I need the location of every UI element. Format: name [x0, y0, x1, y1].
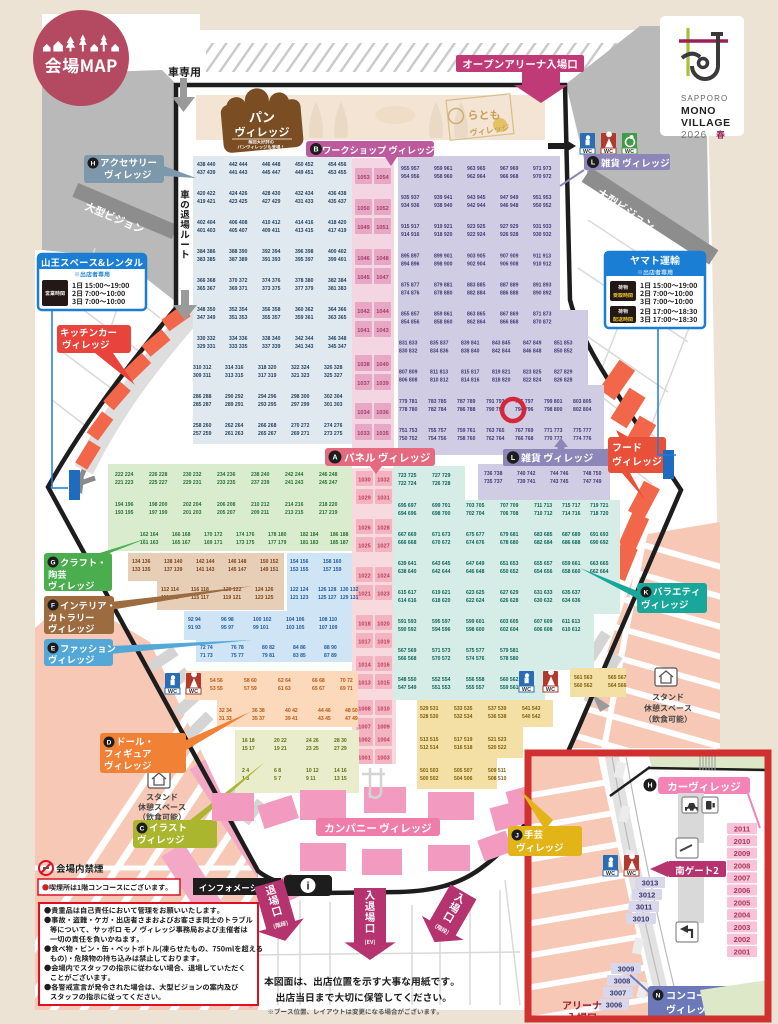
svg-text:786 788: 786 788: [457, 407, 476, 413]
svg-text:174 176: 174 176: [236, 532, 255, 538]
svg-text:571 573: 571 573: [432, 648, 451, 654]
svg-text:WC: WC: [189, 689, 198, 695]
svg-text:934 936: 934 936: [401, 203, 420, 209]
svg-text:2001: 2001: [734, 948, 751, 957]
svg-text:H: H: [647, 783, 652, 790]
svg-text:699 701: 699 701: [432, 503, 451, 509]
svg-text:882 884: 882 884: [467, 290, 486, 296]
svg-text:508 510: 508 510: [488, 776, 507, 782]
svg-text:289 291: 289 291: [225, 402, 244, 408]
svg-text:1052: 1052: [376, 206, 388, 212]
svg-text:687 689: 687 689: [562, 532, 581, 538]
svg-text:1029: 1029: [358, 496, 370, 502]
svg-text:96 98: 96 98: [221, 617, 234, 623]
svg-text:971 973: 971 973: [533, 166, 552, 172]
svg-text:803 805: 803 805: [573, 399, 592, 405]
svg-text:194 196: 194 196: [115, 502, 134, 508]
svg-text:321 323: 321 323: [291, 373, 310, 379]
svg-text:1049: 1049: [357, 225, 369, 231]
svg-text:298 300: 298 300: [291, 394, 310, 400]
svg-text:871 873: 871 873: [533, 312, 552, 318]
svg-text:675 677: 675 677: [466, 532, 485, 538]
svg-text:1047: 1047: [376, 275, 388, 281]
svg-text:1026: 1026: [358, 526, 370, 532]
svg-text:555 557: 555 557: [466, 685, 485, 691]
svg-text:513 515: 513 515: [420, 737, 439, 743]
svg-text:561 563: 561 563: [574, 675, 593, 681]
svg-text:1048: 1048: [376, 256, 388, 262]
svg-text:126 128: 126 128: [318, 587, 337, 593]
svg-text:879 881: 879 881: [434, 282, 453, 288]
svg-text:942 944: 942 944: [467, 203, 486, 209]
svg-text:57 59: 57 59: [244, 686, 257, 692]
svg-text:225 227: 225 227: [149, 480, 168, 486]
svg-text:512 514: 512 514: [420, 745, 439, 751]
svg-text:H: H: [91, 161, 96, 168]
svg-text:2006: 2006: [734, 886, 751, 895]
svg-text:230 232: 230 232: [183, 472, 202, 478]
svg-text:831 833: 831 833: [399, 341, 418, 347]
svg-text:899 901: 899 901: [434, 253, 453, 259]
svg-text:678 680: 678 680: [500, 540, 519, 546]
svg-text:14 16: 14 16: [334, 768, 347, 774]
svg-text:1004: 1004: [377, 738, 390, 744]
svg-text:955 957: 955 957: [401, 166, 420, 172]
svg-text:847 849: 847 849: [523, 341, 542, 347]
svg-text:810 812: 810 812: [430, 378, 449, 384]
svg-text:618 620: 618 620: [432, 598, 451, 604]
svg-text:342 344: 342 344: [295, 336, 314, 342]
svg-text:309 311: 309 311: [193, 373, 211, 379]
svg-text:205 207: 205 207: [217, 510, 236, 516]
svg-text:36 38: 36 38: [252, 708, 265, 714]
svg-text:706 708: 706 708: [500, 511, 519, 517]
svg-text:516 518: 516 518: [454, 745, 473, 751]
svg-text:774 776: 774 776: [573, 436, 592, 442]
svg-text:574 576: 574 576: [466, 656, 485, 662]
svg-text:285 287: 285 287: [193, 402, 212, 408]
svg-text:3007: 3007: [610, 989, 627, 998]
svg-text:926 928: 926 928: [500, 232, 519, 238]
svg-text:438 440: 438 440: [197, 162, 216, 168]
svg-text:338 340: 338 340: [262, 336, 281, 342]
svg-text:736 738: 736 738: [484, 471, 503, 477]
svg-text:1002: 1002: [358, 738, 370, 744]
svg-text:2009: 2009: [734, 849, 751, 858]
svg-text:1036: 1036: [376, 410, 388, 416]
svg-text:206 208: 206 208: [217, 502, 236, 508]
svg-text:898 900: 898 900: [434, 261, 453, 267]
svg-text:359 361: 359 361: [295, 315, 314, 321]
svg-text:428 430: 428 430: [262, 191, 281, 197]
svg-text:1034: 1034: [357, 410, 370, 416]
svg-text:WC: WC: [546, 687, 555, 693]
svg-text:1028: 1028: [377, 526, 389, 532]
svg-text:75 77: 75 77: [231, 653, 244, 659]
svg-text:N: N: [656, 993, 661, 1000]
svg-text:1018: 1018: [358, 622, 370, 628]
svg-text:2002: 2002: [734, 935, 751, 944]
svg-text:104 106: 104 106: [286, 617, 305, 623]
svg-text:690 692: 690 692: [590, 540, 609, 546]
svg-text:445 447: 445 447: [262, 170, 281, 176]
svg-text:951 953: 951 953: [533, 195, 552, 201]
svg-text:266 268: 266 268: [258, 423, 277, 429]
svg-text:15 17: 15 17: [242, 746, 255, 752]
svg-text:619 621: 619 621: [432, 590, 451, 596]
svg-text:814 816: 814 816: [461, 378, 480, 384]
svg-text:802 804: 802 804: [573, 407, 592, 413]
svg-text:198 200: 198 200: [149, 502, 168, 508]
svg-text:262 264: 262 264: [225, 423, 244, 429]
svg-text:1040: 1040: [376, 362, 388, 368]
svg-text:142 144: 142 144: [196, 559, 215, 565]
svg-text:137 139: 137 139: [164, 567, 183, 573]
svg-text:399 401: 399 401: [328, 257, 347, 263]
svg-text:286 288: 286 288: [193, 394, 212, 400]
svg-text:130 132: 130 132: [340, 587, 359, 593]
svg-text:431 433: 431 433: [295, 199, 314, 205]
svg-text:D: D: [107, 740, 112, 747]
svg-text:293 295: 293 295: [258, 402, 277, 408]
svg-text:355 357: 355 357: [262, 315, 281, 321]
svg-text:683 685: 683 685: [534, 532, 553, 538]
svg-text:222 224: 222 224: [115, 472, 134, 478]
svg-text:146 148: 146 148: [228, 559, 247, 565]
svg-text:890 892: 890 892: [533, 290, 552, 296]
svg-text:261 263: 261 263: [225, 431, 244, 437]
svg-text:923 925: 923 925: [467, 224, 486, 230]
svg-text:413 415: 413 415: [295, 228, 314, 234]
svg-text:610 612: 610 612: [562, 627, 581, 633]
svg-text:382 384: 382 384: [328, 278, 347, 284]
svg-text:591 593: 591 593: [398, 619, 417, 625]
svg-text:121 123: 121 123: [290, 595, 309, 601]
svg-text:694 696: 694 696: [398, 511, 417, 517]
svg-text:670 672: 670 672: [432, 540, 451, 546]
svg-text:1037: 1037: [357, 381, 369, 387]
svg-text:614 616: 614 616: [398, 598, 417, 604]
svg-text:565 567: 565 567: [608, 675, 627, 681]
svg-text:723 725: 723 725: [398, 473, 417, 479]
svg-text:141 143: 141 143: [196, 567, 215, 573]
svg-text:145 147: 145 147: [228, 567, 247, 573]
svg-text:778 780: 778 780: [399, 407, 418, 413]
svg-text:590 592: 590 592: [398, 627, 417, 633]
svg-text:424 426: 424 426: [229, 191, 248, 197]
svg-text:310 312: 310 312: [193, 365, 212, 371]
svg-text:927 929: 927 929: [500, 224, 519, 230]
svg-text:755 757: 755 757: [428, 428, 447, 434]
svg-text:635 637: 635 637: [562, 590, 581, 596]
svg-text:651 653: 651 653: [500, 561, 519, 567]
svg-text:435 437: 435 437: [328, 199, 347, 205]
svg-text:417 419: 417 419: [328, 228, 347, 234]
svg-text:602 604: 602 604: [500, 627, 519, 633]
svg-text:598 600: 598 600: [466, 627, 485, 633]
svg-text:388 390: 388 390: [229, 249, 248, 255]
svg-text:123 125: 123 125: [255, 595, 274, 601]
svg-text:378 380: 378 380: [295, 278, 314, 284]
svg-text:16 18: 16 18: [242, 738, 255, 744]
svg-text:2026: 2026: [681, 130, 707, 141]
svg-text:714 716: 714 716: [562, 511, 581, 517]
svg-text:WC: WC: [522, 687, 531, 693]
svg-text:47 49: 47 49: [345, 716, 358, 722]
svg-text:3011: 3011: [636, 903, 652, 912]
svg-text:381 383: 381 383: [328, 286, 347, 292]
svg-text:405 407: 405 407: [229, 228, 248, 234]
svg-text:1046: 1046: [357, 256, 369, 262]
svg-text:133 135: 133 135: [132, 567, 151, 573]
svg-text:453 455: 453 455: [328, 170, 347, 176]
svg-text:763 765: 763 765: [486, 428, 505, 434]
svg-text:3012: 3012: [639, 891, 656, 900]
svg-text:1019: 1019: [377, 640, 389, 646]
svg-text:667 669: 667 669: [398, 532, 417, 538]
svg-text:213 215: 213 215: [285, 510, 304, 516]
svg-text:501 503: 501 503: [420, 768, 439, 774]
svg-text:1008: 1008: [358, 707, 370, 713]
svg-text:659 661: 659 661: [562, 561, 581, 567]
svg-text:540 542: 540 542: [522, 714, 541, 720]
svg-text:290 292: 290 292: [225, 394, 244, 400]
svg-text:3006: 3006: [606, 1001, 623, 1010]
svg-text:775 777: 775 777: [573, 428, 592, 434]
svg-text:783 785: 783 785: [428, 399, 447, 405]
svg-text:799 801: 799 801: [544, 399, 563, 405]
svg-text:646 648: 646 648: [466, 569, 485, 575]
svg-text:719 721: 719 721: [590, 503, 609, 509]
svg-text:257 259: 257 259: [193, 431, 212, 437]
svg-text:400 402: 400 402: [328, 249, 347, 255]
svg-text:119 121: 119 121: [223, 595, 241, 601]
svg-text:548 550: 548 550: [398, 677, 417, 683]
svg-text:1045: 1045: [357, 275, 369, 281]
svg-text:748 750: 748 750: [583, 471, 602, 477]
svg-text:WC: WC: [606, 871, 615, 877]
svg-text:162 164: 162 164: [140, 532, 159, 538]
svg-text:711 713: 711 713: [534, 503, 552, 509]
svg-text:242 244: 242 244: [285, 472, 304, 478]
svg-text:383 385: 383 385: [197, 257, 216, 263]
svg-text:1007: 1007: [358, 725, 370, 731]
svg-text:i: i: [306, 881, 309, 893]
svg-text:170 172: 170 172: [204, 532, 223, 538]
svg-text:363 365: 363 365: [328, 315, 347, 321]
svg-text:2004: 2004: [734, 911, 752, 920]
svg-text:F: F: [51, 603, 55, 610]
svg-text:364 366: 364 366: [328, 307, 347, 313]
svg-text:919 921: 919 921: [434, 224, 453, 230]
svg-text:13 15: 13 15: [334, 776, 347, 782]
svg-text:887 889: 887 889: [500, 282, 519, 288]
svg-text:627 629: 627 629: [500, 590, 519, 596]
svg-text:603 605: 603 605: [500, 619, 519, 625]
svg-text:2005: 2005: [734, 898, 751, 907]
svg-text:186 188: 186 188: [330, 532, 349, 538]
svg-text:922 924: 922 924: [467, 232, 486, 238]
svg-text:735 737: 735 737: [484, 479, 503, 485]
svg-text:541 543: 541 543: [522, 706, 541, 712]
svg-text:442 444: 442 444: [229, 162, 248, 168]
svg-text:759 761: 759 761: [457, 428, 476, 434]
svg-text:910 912: 910 912: [533, 261, 552, 267]
svg-text:959 961: 959 961: [434, 166, 453, 172]
svg-text:J: J: [515, 833, 519, 840]
svg-text:39 41: 39 41: [285, 716, 298, 722]
svg-text:185 187: 185 187: [330, 540, 349, 546]
svg-text:560 562: 560 562: [500, 677, 519, 683]
svg-text:418 420: 418 420: [328, 220, 347, 226]
svg-text:48 50: 48 50: [345, 708, 358, 714]
svg-text:177 179: 177 179: [268, 540, 287, 546]
svg-text:902 904: 902 904: [467, 261, 486, 267]
svg-text:182 184: 182 184: [300, 532, 319, 538]
svg-text:87 89: 87 89: [324, 653, 337, 659]
svg-text:265 267: 265 267: [258, 431, 277, 437]
svg-text:767 769: 767 769: [515, 428, 534, 434]
svg-text:150 152: 150 152: [260, 559, 279, 565]
svg-text:529 531: 529 531: [420, 706, 439, 712]
svg-text:165 167: 165 167: [172, 540, 191, 546]
svg-text:564 566: 564 566: [608, 683, 627, 689]
svg-text:229 231: 229 231: [183, 480, 202, 486]
svg-text:313 315: 313 315: [225, 373, 244, 379]
svg-text:122 124: 122 124: [290, 587, 309, 593]
svg-text:124 126: 124 126: [255, 587, 274, 593]
svg-text:935 937: 935 937: [401, 195, 420, 201]
svg-text:1015: 1015: [377, 681, 389, 687]
svg-text:365 367: 365 367: [197, 286, 216, 292]
svg-text:134 136: 134 136: [132, 559, 151, 565]
svg-text:2 4: 2 4: [242, 768, 249, 774]
svg-text:866 868: 866 868: [500, 320, 519, 326]
svg-text:818 820: 818 820: [492, 378, 511, 384]
svg-text:374 376: 374 376: [262, 278, 281, 284]
svg-text:181 183: 181 183: [300, 540, 319, 546]
svg-text:WC: WC: [168, 689, 177, 695]
svg-text:373 375: 373 375: [262, 286, 281, 292]
svg-text:6 8: 6 8: [274, 768, 281, 774]
svg-text:95 97: 95 97: [221, 625, 234, 631]
svg-text:520 522: 520 522: [488, 745, 507, 751]
svg-text:556 558: 556 558: [466, 677, 485, 683]
svg-text:297 299: 297 299: [291, 402, 310, 408]
svg-text:345 347: 345 347: [328, 344, 347, 350]
svg-text:24 26: 24 26: [306, 738, 319, 744]
svg-text:369 371: 369 371: [229, 286, 248, 292]
svg-text:58 60: 58 60: [244, 678, 257, 684]
svg-text:419 421: 419 421: [197, 199, 216, 205]
svg-text:834 836: 834 836: [430, 349, 449, 355]
svg-text:578 580: 578 580: [500, 656, 519, 662]
svg-text:1053: 1053: [357, 175, 369, 181]
svg-text:970 972: 970 972: [533, 174, 552, 180]
svg-text:594 596: 594 596: [432, 627, 451, 633]
svg-text:202 204: 202 204: [183, 502, 202, 508]
svg-text:370 372: 370 372: [229, 278, 248, 284]
svg-text:154 156: 154 156: [290, 559, 309, 565]
svg-text:782 784: 782 784: [428, 407, 447, 413]
svg-text:643 645: 643 645: [432, 561, 451, 567]
svg-text:2008: 2008: [734, 861, 751, 870]
svg-text:843 845: 843 845: [492, 341, 511, 347]
svg-text:9 11: 9 11: [306, 776, 316, 782]
svg-text:274 276: 274 276: [324, 423, 343, 429]
svg-text:504 506: 504 506: [454, 776, 473, 782]
svg-text:886 888: 886 888: [500, 290, 519, 296]
svg-text:125 127: 125 127: [318, 595, 337, 601]
svg-text:623 625: 623 625: [466, 590, 485, 596]
svg-text:69 71: 69 71: [340, 686, 353, 692]
svg-text:317 319: 317 319: [258, 373, 277, 379]
svg-text:1044: 1044: [376, 309, 389, 315]
svg-text:747 749: 747 749: [583, 479, 602, 485]
svg-text:863 865: 863 865: [467, 312, 486, 318]
svg-text:MONO: MONO: [681, 105, 716, 117]
svg-text:35 37: 35 37: [252, 716, 265, 722]
svg-text:647 649: 647 649: [466, 561, 485, 567]
svg-text:826 828: 826 828: [554, 378, 573, 384]
svg-text:314 316: 314 316: [225, 365, 244, 371]
svg-text:79 81: 79 81: [262, 653, 275, 659]
svg-text:450 452: 450 452: [295, 162, 314, 168]
svg-text:891 893: 891 893: [533, 282, 552, 288]
svg-text:414 416: 414 416: [295, 220, 314, 226]
svg-text:650 652: 650 652: [500, 569, 519, 575]
svg-text:2010: 2010: [734, 837, 751, 846]
svg-text:878 880: 878 880: [434, 290, 453, 296]
svg-text:1042: 1042: [357, 309, 369, 315]
svg-text:559 561: 559 561: [500, 685, 519, 691]
svg-text:947 949: 947 949: [500, 195, 519, 201]
svg-text:76 78: 76 78: [231, 645, 244, 651]
svg-text:149 151: 149 151: [260, 567, 279, 573]
svg-text:686 688: 686 688: [562, 540, 581, 546]
svg-text:153 155: 153 155: [290, 567, 309, 573]
svg-text:679 681: 679 681: [500, 532, 519, 538]
svg-text:169 171: 169 171: [204, 540, 223, 546]
svg-text:258 260: 258 260: [193, 423, 212, 429]
svg-text:233 235: 233 235: [217, 480, 236, 486]
svg-text:918 920: 918 920: [434, 232, 453, 238]
svg-text:19 21: 19 21: [274, 746, 287, 752]
svg-text:1020: 1020: [377, 622, 389, 628]
svg-text:103 105: 103 105: [286, 625, 305, 631]
svg-text:500 502: 500 502: [420, 776, 439, 782]
svg-text:579 581: 579 581: [500, 648, 519, 654]
svg-text:750 752: 750 752: [399, 436, 418, 442]
svg-text:53 55: 53 55: [210, 686, 223, 692]
svg-text:702 704: 702 704: [466, 511, 485, 517]
svg-text:246 248: 246 248: [319, 472, 338, 478]
svg-text:28 30: 28 30: [334, 738, 347, 744]
svg-text:743 745: 743 745: [550, 479, 569, 485]
svg-text:99 101: 99 101: [253, 625, 269, 631]
svg-text:1013: 1013: [358, 681, 370, 687]
svg-text:2003: 2003: [734, 923, 751, 932]
svg-text:178 180: 178 180: [268, 532, 287, 538]
svg-text:SAPPORO: SAPPORO: [681, 94, 728, 103]
svg-text:1022: 1022: [358, 574, 370, 580]
svg-text:599 601: 599 601: [466, 619, 485, 625]
svg-text:638 640: 638 640: [398, 569, 417, 575]
svg-text:566 568: 566 568: [398, 656, 417, 662]
svg-text:547 549: 547 549: [398, 685, 417, 691]
svg-text:88 90: 88 90: [324, 645, 337, 651]
svg-text:819 821: 819 821: [492, 370, 511, 376]
